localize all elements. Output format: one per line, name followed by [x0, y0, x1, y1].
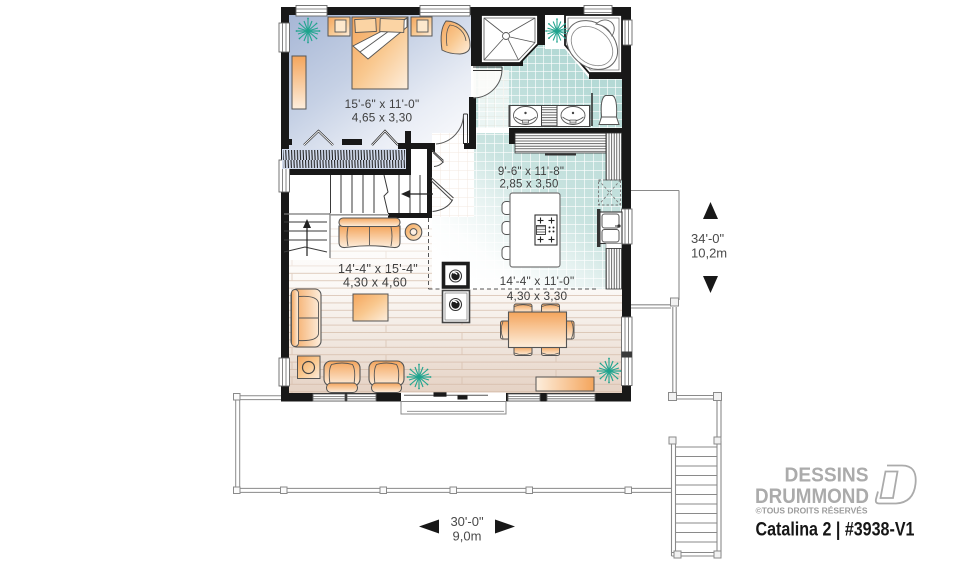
svg-text:14'-4" x 15'-4": 14'-4" x 15'-4" — [338, 262, 418, 276]
svg-text:15'-6" x 11'-0": 15'-6" x 11'-0" — [345, 97, 420, 111]
svg-text:4,30 x 3,30: 4,30 x 3,30 — [507, 289, 568, 303]
svg-text:14'-4" x 11'-0": 14'-4" x 11'-0" — [500, 274, 575, 288]
svg-text:©TOUS DROITS RÉSERVÉS: ©TOUS DROITS RÉSERVÉS — [756, 506, 868, 516]
svg-text:DESSINS: DESSINS — [785, 465, 869, 487]
svg-text:30'-0": 30'-0" — [450, 514, 484, 529]
svg-text:34'-0": 34'-0" — [691, 231, 725, 246]
svg-text:10,2m: 10,2m — [691, 246, 727, 261]
svg-text:9,0m: 9,0m — [453, 529, 482, 544]
svg-text:4,65 x 3,30: 4,65 x 3,30 — [352, 111, 413, 125]
svg-text:2,85 x 3,50: 2,85 x 3,50 — [499, 179, 558, 191]
svg-text:9'-6" x 11'-8": 9'-6" x 11'-8" — [498, 166, 564, 178]
svg-text:Catalina 2 | #3938-V1: Catalina 2 | #3938-V1 — [756, 520, 915, 541]
svg-text:4,30 x 4,60: 4,30 x 4,60 — [343, 276, 407, 290]
